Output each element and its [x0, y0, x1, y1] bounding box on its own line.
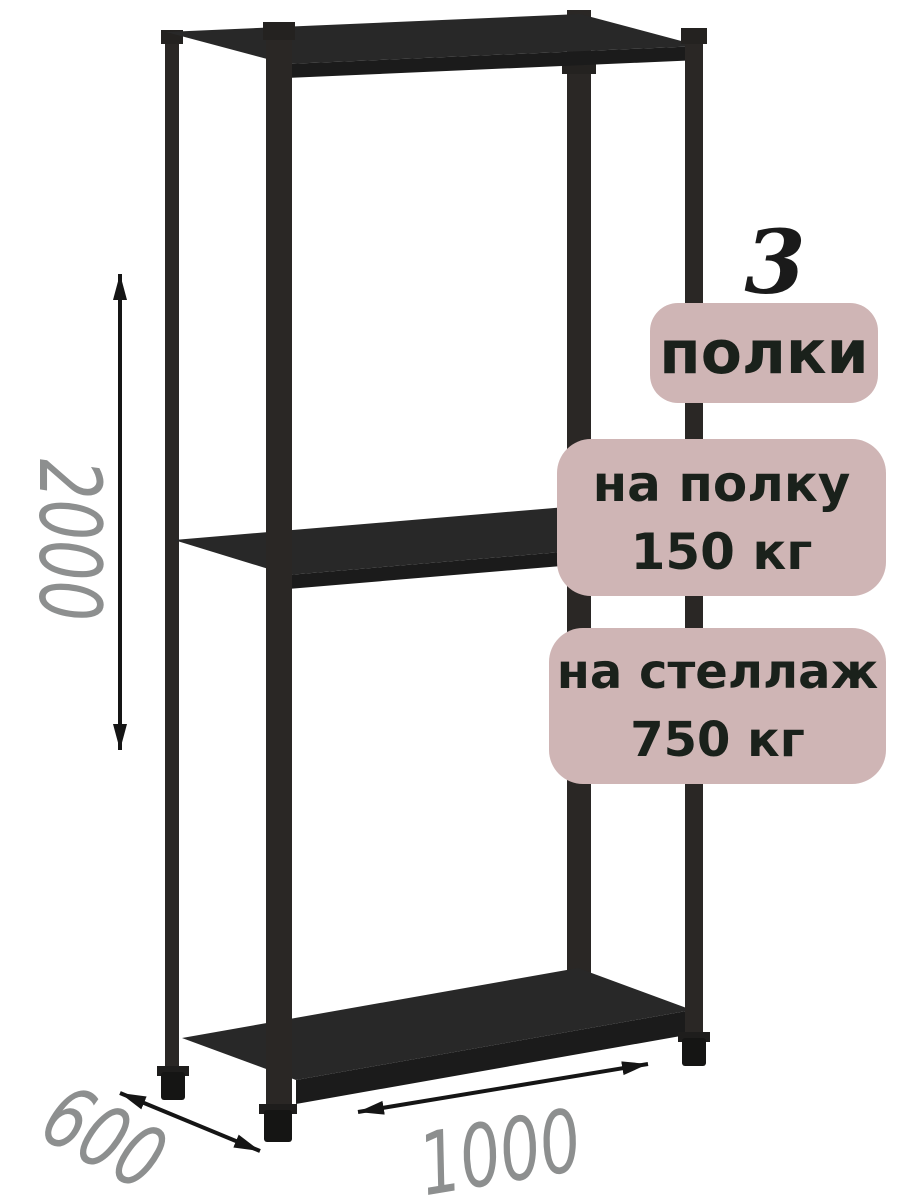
- post-front-right-head: [681, 28, 707, 44]
- foot-back-left: [161, 1072, 185, 1100]
- shelf-capacity-line2: 150 кг: [557, 518, 886, 586]
- foot-front-right: [682, 1038, 706, 1066]
- shelf-count-badge: полки: [650, 303, 878, 403]
- shelf-bottom-level: [182, 968, 692, 1104]
- height-dimension-label: 2000: [20, 459, 120, 621]
- product-dimension-illustration: 2000 1000 600 3 полки на полку 150 кг на…: [0, 0, 900, 1200]
- foot-front-left: [264, 1110, 292, 1142]
- shelf-capacity-line1: на полку: [557, 450, 886, 518]
- post-front-left: [266, 26, 292, 1108]
- shelf-count-label: полки: [650, 318, 878, 388]
- width-dimension-label: 1000: [412, 1090, 588, 1200]
- post-front-left-head: [263, 22, 295, 40]
- rack-capacity-line1: на стеллаж: [549, 638, 886, 706]
- rack-capacity-badge: на стеллаж 750 кг: [549, 628, 886, 784]
- post-back-left: [165, 33, 179, 1070]
- depth-dimension-label: 600: [27, 1065, 181, 1200]
- shelf-capacity-badge: на полку 150 кг: [557, 439, 886, 596]
- rack-capacity-line2: 750 кг: [549, 706, 886, 774]
- rack-illustration: 2000 1000 600: [0, 0, 900, 1200]
- shelf-count-value: 3: [700, 218, 850, 306]
- shelf-top-level: [166, 14, 700, 78]
